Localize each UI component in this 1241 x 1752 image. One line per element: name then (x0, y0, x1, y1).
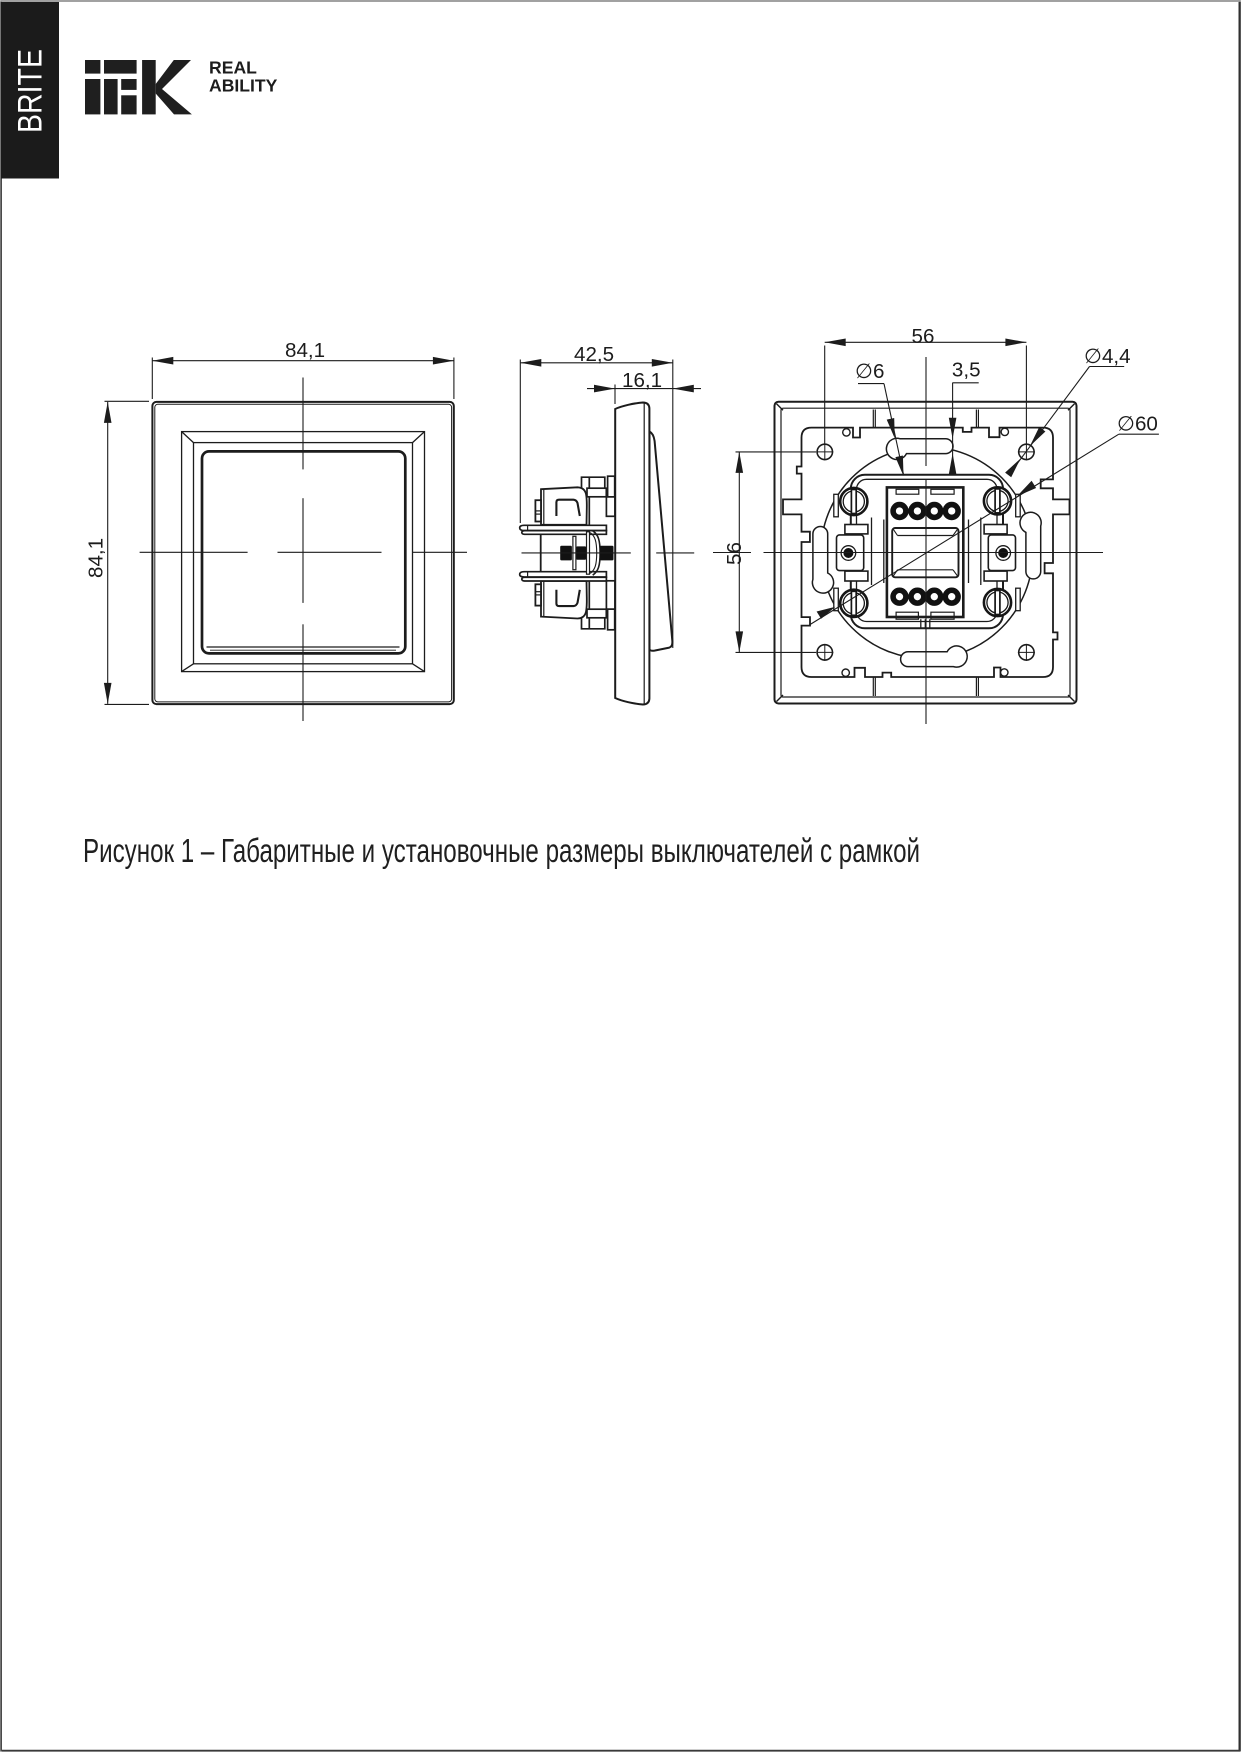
svg-text:56: 56 (912, 325, 935, 348)
svg-text:Рисунок 1 – Габаритные и устан: Рисунок 1 – Габаритные и установочные ра… (83, 833, 920, 870)
svg-text:BRITE: BRITE (12, 49, 50, 133)
svg-text:ABILITY: ABILITY (209, 75, 278, 95)
svg-text:∅4,4: ∅4,4 (1084, 345, 1131, 368)
svg-text:84,1: 84,1 (285, 339, 325, 362)
svg-text:84,1: 84,1 (85, 538, 108, 578)
svg-text:∅60: ∅60 (1117, 413, 1158, 436)
svg-text:56: 56 (723, 542, 746, 565)
svg-text:3,5: 3,5 (952, 359, 981, 382)
svg-text:∅6: ∅6 (855, 360, 884, 383)
